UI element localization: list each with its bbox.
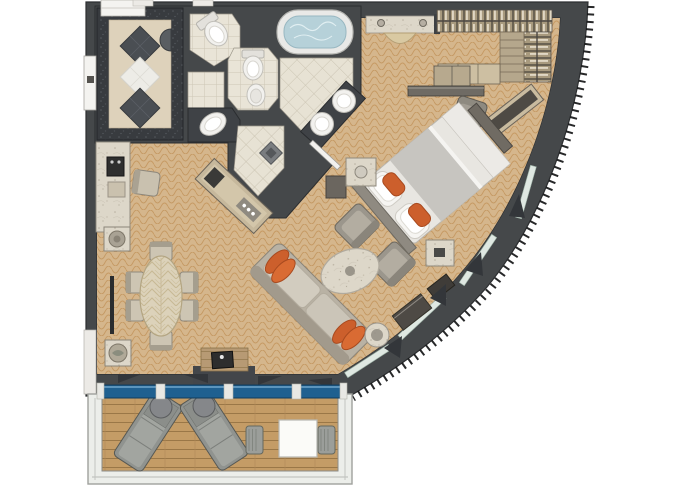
exterior-door-leaf bbox=[84, 56, 96, 110]
outdoor-chair-left bbox=[246, 426, 263, 454]
corridor-door-mark-1 bbox=[133, 0, 153, 6]
nightstand-right bbox=[426, 240, 454, 266]
planter-south bbox=[105, 340, 131, 366]
wall-art-panel bbox=[110, 276, 114, 334]
planter-north bbox=[104, 227, 130, 251]
bidet bbox=[247, 84, 265, 106]
coffee-machine bbox=[107, 157, 124, 176]
balcony bbox=[88, 388, 352, 484]
washbasin-2 bbox=[311, 113, 334, 136]
tv bbox=[211, 351, 233, 368]
floor-plan-canvas bbox=[0, 0, 680, 486]
outdoor-table bbox=[279, 420, 317, 457]
bathtub bbox=[277, 10, 353, 54]
foyer-diamond-inlay bbox=[120, 26, 160, 128]
closet-shelves bbox=[500, 32, 524, 82]
toilet-2 bbox=[242, 50, 264, 80]
dining-chair-r2 bbox=[180, 300, 198, 321]
floor-plan-svg bbox=[0, 0, 680, 486]
washbasin-3 bbox=[333, 90, 356, 113]
sliding-glass-doors bbox=[97, 383, 347, 399]
left-wall-trim bbox=[84, 330, 96, 394]
outdoor-chair-right bbox=[318, 426, 335, 454]
water-closet-2 bbox=[228, 48, 278, 110]
wall-shelves bbox=[434, 66, 470, 86]
corridor-door-mark-2 bbox=[193, 0, 213, 6]
dining-chair-r1 bbox=[180, 272, 198, 293]
side-table bbox=[365, 323, 389, 347]
bar-stool bbox=[131, 169, 160, 196]
